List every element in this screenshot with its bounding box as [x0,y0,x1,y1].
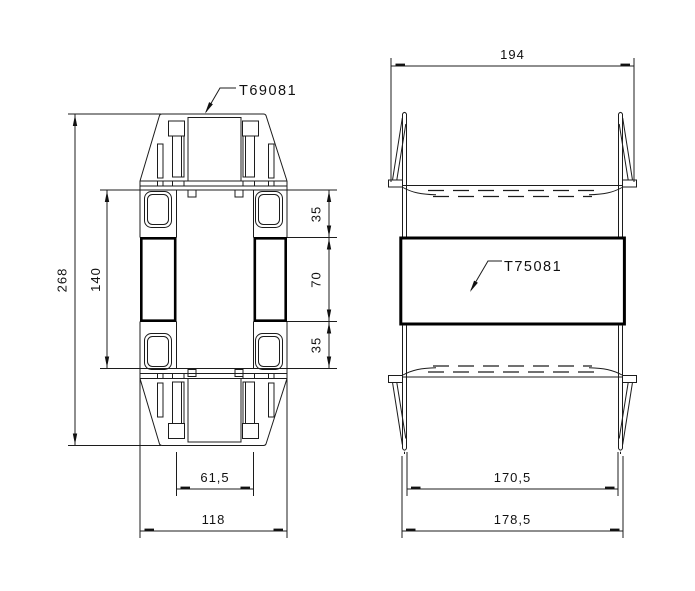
dim-tick [145,529,155,531]
front-top-interior [158,118,275,198]
window-slot [148,337,169,367]
dim-outer-span-text: 178,5 [494,512,532,527]
side-bottom-hidden-lines [428,366,597,372]
front-bottom-interior [158,370,275,443]
dim-bottom-window-text: 35 [309,337,324,353]
arrow-down [73,434,77,445]
arrow-down [327,310,331,321]
side-top-hidden-lines [428,191,597,197]
front-part-label: T69081 [239,83,297,99]
dim-tick [610,529,620,531]
drawing-canvas: T69081 268 140 35 70 35 61,5 118 T75081 [0,0,695,591]
window-slot [148,195,169,225]
dim-tick [274,529,284,531]
window-slot [259,195,280,225]
side-view: T75081 194 170,5 178,5 [389,47,637,538]
arrow-up [327,239,331,250]
dim-outer-width-text: 118 [202,512,226,527]
dim-overall-height-text: 268 [55,268,70,293]
arrow-up [105,191,109,202]
dim-top-window-text: 35 [309,206,324,222]
front-bottom-outline [140,369,287,446]
dim-tick [411,487,421,489]
dim-tick [181,487,191,489]
arrow-up [327,191,331,202]
dim-inner-span-text: 170,5 [494,470,532,485]
dim-inner-height-text: 140 [88,267,103,292]
dim-inner-width-text: 61,5 [200,470,229,485]
arrow-up [327,323,331,334]
technical-drawing-page: T69081 268 140 35 70 35 61,5 118 T75081 [0,0,695,591]
side-top-structure [389,112,637,237]
arrow-down [327,226,331,237]
arrow-up [73,115,77,126]
dim-tick [241,487,251,489]
side-bottom-structure [389,325,637,454]
front-legs-thin [140,190,287,369]
dim-tick [396,64,406,66]
dim-tick [621,64,631,66]
leader-arrow [205,102,213,113]
dim-center-span-text: 70 [309,271,324,287]
window-slot [259,337,280,367]
front-view: T69081 268 140 35 70 35 61,5 118 [55,83,338,538]
front-top-outline [140,114,287,190]
dim-flange-span-text: 194 [500,47,525,62]
arrow-down [327,357,331,368]
front-dim-arrows [73,115,331,445]
side-center-plate [401,238,625,324]
front-legs-thick [140,238,287,322]
dim-tick [406,529,416,531]
front-leader-line [206,88,236,112]
dim-tick [605,487,615,489]
side-part-label: T75081 [504,259,562,275]
front-windows [145,192,283,370]
arrow-down [105,357,109,368]
